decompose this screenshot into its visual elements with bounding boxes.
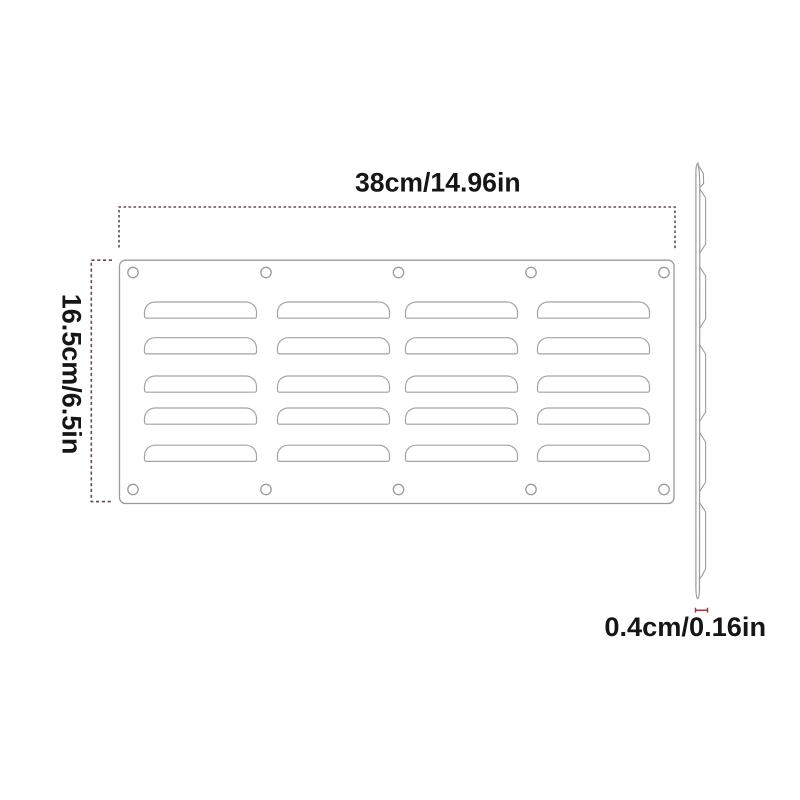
svg-text:16.5cm/6.5in: 16.5cm/6.5in — [57, 294, 87, 455]
svg-text:38cm/14.96in: 38cm/14.96in — [355, 167, 521, 197]
svg-text:0.4cm/0.16in: 0.4cm/0.16in — [604, 611, 766, 642]
